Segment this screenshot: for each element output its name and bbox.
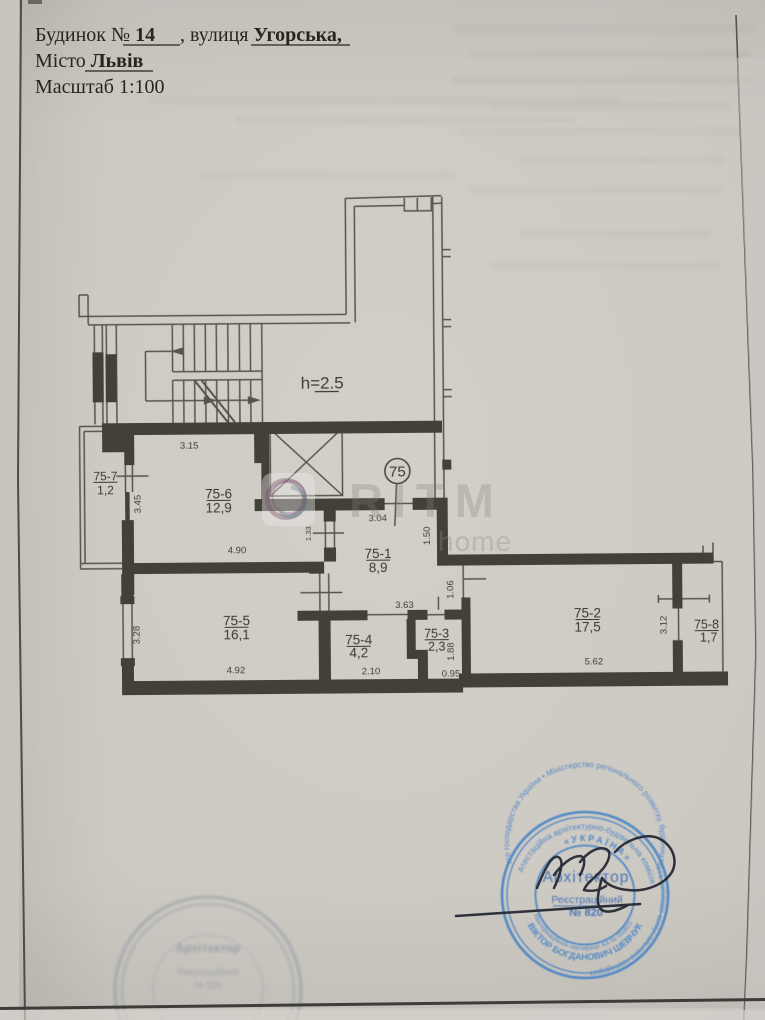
svg-text:Масштаб 1:100: Масштаб 1:100 (35, 76, 165, 98)
svg-text:75-6: 75-6 (205, 486, 232, 501)
svg-text:Будинок № 14: Будинок № 14 (35, 24, 155, 46)
svg-text:5.62: 5.62 (585, 656, 604, 667)
svg-text:4.90: 4.90 (228, 545, 247, 556)
svg-text:, вулиця Угорська,: , вулиця Угорська, (180, 24, 342, 46)
svg-text:75-3: 75-3 (424, 627, 449, 641)
svg-text:2,3: 2,3 (428, 640, 446, 654)
svg-text:17,5: 17,5 (574, 619, 600, 634)
svg-text:0.95: 0.95 (442, 669, 461, 680)
svg-text:8,9: 8,9 (369, 560, 388, 575)
svg-text:Реєстраційний: Реєстраційний (177, 967, 238, 977)
svg-text:Архітектор: Архітектор (176, 941, 241, 955)
svg-text:Реєстраційний: Реєстраційний (551, 894, 622, 906)
svg-text:1,7: 1,7 (700, 631, 718, 645)
svg-text:№ 820: № 820 (194, 980, 221, 990)
svg-text:home: home (438, 526, 512, 557)
svg-text:12,9: 12,9 (205, 500, 231, 515)
svg-text:4,2: 4,2 (349, 645, 368, 660)
svg-text:Місто Львів: Місто Львів (35, 50, 144, 72)
svg-text:3.45: 3.45 (133, 495, 144, 514)
svg-text:4.92: 4.92 (227, 665, 246, 676)
svg-text:1.33: 1.33 (304, 526, 313, 541)
svg-text:3.15: 3.15 (180, 441, 199, 452)
svg-text:16,1: 16,1 (223, 627, 249, 642)
svg-text:3.63: 3.63 (395, 600, 414, 611)
svg-text:3.28: 3.28 (132, 626, 143, 645)
svg-text:3.12: 3.12 (659, 616, 670, 635)
svg-text:1,2: 1,2 (97, 483, 114, 497)
svg-text:75-7: 75-7 (93, 469, 117, 483)
svg-text:75-1: 75-1 (364, 546, 391, 561)
svg-text:1.88: 1.88 (446, 642, 457, 661)
svg-text:2.10: 2.10 (362, 666, 381, 677)
svg-text:1.06: 1.06 (445, 580, 456, 599)
svg-text:75-5: 75-5 (223, 613, 250, 628)
svg-text:h=2.5: h=2.5 (301, 373, 344, 392)
svg-text:75-2: 75-2 (574, 605, 601, 620)
svg-text:1.50: 1.50 (422, 526, 433, 545)
svg-text:RITM: RITM (349, 474, 504, 527)
